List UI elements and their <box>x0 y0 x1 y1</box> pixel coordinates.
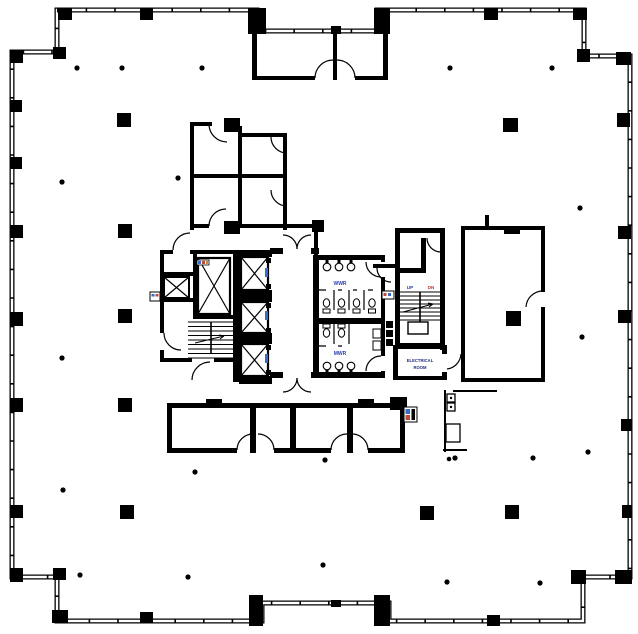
door-swing-arc-symbol <box>258 434 274 450</box>
door-swing-arc-symbol <box>331 434 347 450</box>
column-marker-symbol <box>420 506 434 520</box>
grid-dot-marker-symbol <box>59 179 64 184</box>
door-swing-arc-symbol <box>209 209 226 226</box>
door-swing-arc-symbol <box>297 235 311 249</box>
column-marker-symbol <box>248 8 266 34</box>
stair-direction-arrow <box>195 335 224 343</box>
equipment-box <box>446 424 460 442</box>
east-room <box>461 215 545 382</box>
door-swing-arc-symbol <box>526 291 543 307</box>
column-marker-symbol <box>10 100 22 112</box>
column-marker-symbol <box>503 118 518 132</box>
door-swing-arc-symbol <box>366 356 381 371</box>
grid-dot-marker-symbol <box>577 205 582 210</box>
elevator-bank-wall <box>233 250 241 382</box>
column-marker-symbol <box>374 595 390 626</box>
washrooms: WWR <box>313 255 385 378</box>
column-marker-symbol <box>140 8 153 20</box>
grid-dot-marker-symbol <box>452 455 457 460</box>
column-marker-symbol <box>616 52 631 65</box>
column-marker-symbol <box>53 568 66 580</box>
column-marker-symbol <box>617 113 630 127</box>
mens-washroom-label: MWR <box>334 351 347 357</box>
door-swing-arc-symbol <box>283 235 297 249</box>
equipment-knob <box>450 397 452 399</box>
column-marker-symbol <box>10 505 23 518</box>
sink-symbols <box>323 362 355 373</box>
column-marker-symbol <box>10 157 22 169</box>
column-marker-symbol <box>10 312 23 326</box>
grid-dot-marker-symbol <box>549 65 554 70</box>
elevator-lobby <box>270 235 319 392</box>
column-marker-symbol <box>10 568 23 582</box>
column-marker-symbol <box>331 26 341 34</box>
door-swing-arc-symbol <box>447 354 461 369</box>
column-marker-symbol <box>618 310 631 323</box>
column-marker-symbol <box>118 224 132 238</box>
column-marker-symbol <box>118 309 132 323</box>
east-room-walls <box>461 215 545 382</box>
wall-fixture <box>150 292 160 301</box>
column-marker-symbol <box>621 419 632 431</box>
wall-panel-boxes <box>386 321 393 346</box>
east-stairwell: UP DN <box>395 228 445 350</box>
door-swing-arc-symbol <box>377 268 391 282</box>
top-entry-room-walls <box>252 33 388 80</box>
column-marker-symbol <box>571 570 586 584</box>
column-marker-symbol <box>374 8 390 34</box>
upper-room-walls <box>190 118 324 256</box>
door-swing-arc-symbol <box>315 60 333 78</box>
grid-dot-marker-symbol <box>119 65 124 70</box>
electrical-room: ELECTRICAL ROOM <box>393 345 461 380</box>
utility-closet <box>443 390 497 452</box>
column-marker-symbol <box>10 398 23 412</box>
building-core: WWR <box>150 228 497 452</box>
door-swing-arc-symbol <box>352 434 368 450</box>
elevator-bank-wall <box>239 290 272 302</box>
column-marker-symbol <box>484 8 498 20</box>
grid-dot-marker-symbol <box>185 574 190 579</box>
grid-dot-marker-symbol <box>175 175 180 180</box>
sink-symbols <box>323 260 355 271</box>
grid-dot-marker-symbol <box>537 580 542 585</box>
womens-washroom: WWR <box>319 260 381 313</box>
door-swing-arc-symbol <box>173 233 190 250</box>
column-marker-symbol <box>117 113 131 127</box>
column-marker-symbol <box>10 225 23 238</box>
column-marker-symbol <box>52 610 68 623</box>
floor-plan-page: WWR <box>0 0 638 634</box>
column-marker-symbol <box>506 311 521 326</box>
column-marker-symbol <box>577 49 590 62</box>
top-entry-rooms <box>252 33 388 80</box>
wall-mullion-tick-symbol <box>12 10 630 621</box>
column-marker-symbol <box>615 570 632 584</box>
south-room-row <box>167 397 417 453</box>
column-marker-symbol <box>140 612 153 623</box>
stair-up-label: UP <box>407 285 413 290</box>
column-marker-symbol <box>118 398 132 412</box>
elevator-bank-wall <box>239 333 272 344</box>
east-stair-walls <box>395 228 445 350</box>
grid-dot-marker-symbol <box>530 455 535 460</box>
upper-room-cluster <box>190 118 324 256</box>
grid-dot-marker-symbol <box>59 355 64 360</box>
electrical-room-label-line2: ROOM <box>413 365 427 370</box>
equipment-knob <box>450 406 452 408</box>
perimeter-columns <box>10 8 632 626</box>
floor-plan-canvas: WWR <box>0 0 638 634</box>
drinking-fountain-fixture <box>404 407 417 422</box>
grid-dot-marker-symbol <box>585 449 590 454</box>
column-marker-symbol <box>249 595 263 626</box>
lobby-walls <box>270 248 319 378</box>
grid-dot-marker-symbol <box>579 334 584 339</box>
washroom-walls <box>313 255 385 378</box>
grid-dot-marker-symbol <box>192 469 197 474</box>
column-marker-symbol <box>505 505 519 519</box>
column-marker-symbol <box>53 47 66 59</box>
grid-dot-marker-symbol <box>447 457 452 462</box>
electrical-room-label-line1: ELECTRICAL <box>407 358 434 363</box>
column-marker-symbol <box>573 8 587 20</box>
door-swing-arc-symbol <box>283 378 297 392</box>
call-panel-fixture <box>197 260 209 265</box>
column-marker-symbol <box>331 600 341 607</box>
column-marker-symbol <box>10 50 23 63</box>
grid-dot-marker-symbol <box>60 487 65 492</box>
south-room-walls <box>167 397 407 453</box>
door-swing-arc-symbol <box>427 238 441 252</box>
mens-washroom: MWR <box>319 324 381 373</box>
column-marker-symbol <box>487 615 500 626</box>
urinal-symbols <box>373 329 381 350</box>
west-stairwell <box>188 322 235 358</box>
elevator-bank-wall <box>239 376 272 384</box>
column-marker-symbol <box>58 8 72 20</box>
grid-dot-marker-symbol <box>322 457 327 462</box>
elevator-bank <box>233 250 272 384</box>
door-swing-arc-symbol <box>337 60 355 78</box>
janitor-shaft <box>164 277 189 298</box>
grid-dot-marker-symbol <box>199 65 204 70</box>
stair-landing-rail <box>408 322 428 334</box>
grid-dot-marker-symbol <box>320 562 325 567</box>
door-swing-arc-symbol <box>297 378 311 392</box>
grid-dot-marker-symbol <box>447 65 452 70</box>
grid-dot-marker-symbol <box>77 572 82 577</box>
fire-extinguisher-cabinet-fixture <box>382 291 394 299</box>
column-marker-symbol <box>622 505 632 518</box>
grid-dot-marker-symbol <box>444 579 449 584</box>
grid-dot-marker-symbol <box>74 65 79 70</box>
perimeter-inner-gap <box>12 10 630 621</box>
door-swing-arc-symbol <box>164 333 181 350</box>
corridor-wall <box>373 264 395 268</box>
door-swing-arc-symbol <box>192 362 210 380</box>
stair-down-label: DN <box>428 285 435 290</box>
column-marker-symbol <box>120 505 134 519</box>
column-marker-symbol <box>618 226 631 239</box>
perimeter-outer-line <box>12 10 630 621</box>
perimeter-wall <box>12 10 630 621</box>
service-elevator <box>197 258 230 314</box>
womens-washroom-label: WWR <box>333 281 346 287</box>
